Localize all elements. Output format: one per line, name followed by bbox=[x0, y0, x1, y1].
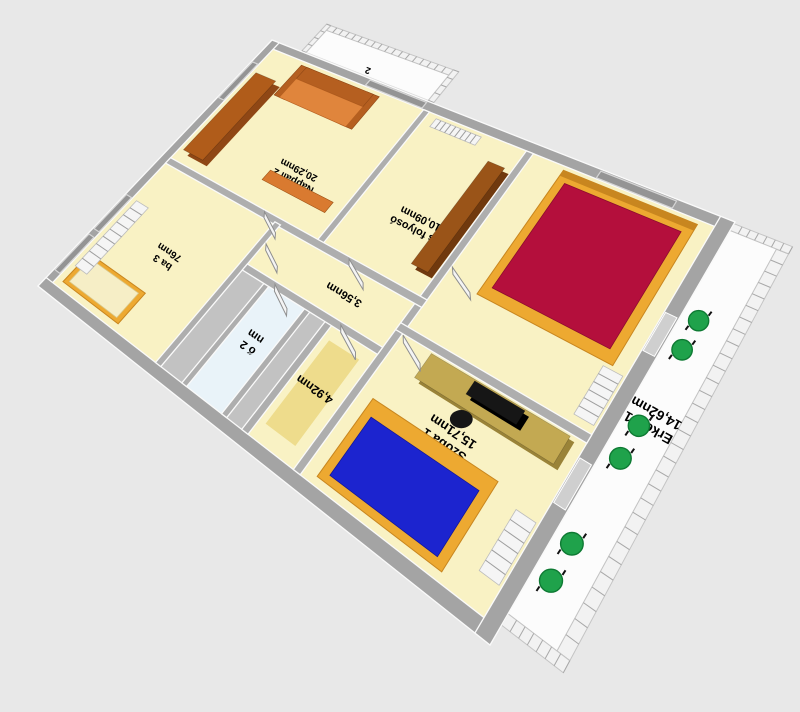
balcony-chair-2[interactable] bbox=[672, 340, 692, 360]
balcony-chair-5[interactable] bbox=[561, 533, 584, 556]
floorplan-3d-canvas: Nappali 220,29nmés folyosó10,09nmSzoba 2… bbox=[0, 0, 800, 712]
balcony-chair-3[interactable] bbox=[628, 415, 649, 436]
floorplan-3d-view: Nappali 220,29nmés folyosó10,09nmSzoba 2… bbox=[0, 0, 800, 712]
balcony-chair-1[interactable] bbox=[689, 311, 709, 331]
balcony-chair-4[interactable] bbox=[610, 448, 632, 470]
desk-chair[interactable] bbox=[450, 410, 473, 428]
balcony-chair-6[interactable] bbox=[540, 569, 563, 592]
